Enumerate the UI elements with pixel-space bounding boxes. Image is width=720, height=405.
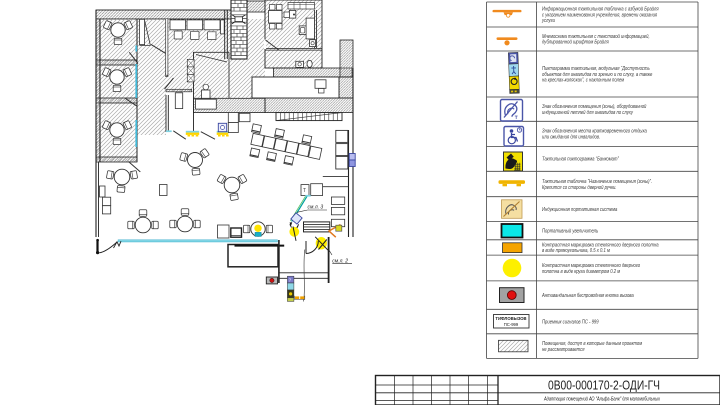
svg-text:ПС-999: ПС-999	[504, 322, 519, 327]
svg-text:Тактильная пиктограмма “Банком: Тактильная пиктограмма “Банкомат”	[542, 156, 619, 161]
svg-text:не рассматривается: не рассматривается	[542, 347, 585, 352]
svg-text:Портативный увеличитель: Портативный увеличитель	[542, 227, 599, 233]
svg-text:Тактильная табличка “Назначени: Тактильная табличка “Назначение помещени…	[542, 179, 652, 184]
svg-text:на креслах-колясках”, с наклон: на креслах-колясках”, с наклонным полем	[542, 77, 625, 82]
svg-text:Антивандальная беспроводная кн: Антивандальная беспроводная кнопка вызов…	[541, 293, 634, 298]
svg-text:или ожидания для инвалидов.: или ожидания для инвалидов.	[542, 134, 600, 139]
svg-text:Контрастная маркировка стеклян: Контрастная маркировка стеклянного дверн…	[542, 242, 659, 247]
svg-text:0В00-000170-2-ОДИ-ГЧ: 0В00-000170-2-ОДИ-ГЧ	[548, 378, 660, 392]
svg-text:полотна в виде круга диаметром: полотна в виде круга диаметром 0.2 м	[542, 268, 621, 273]
svg-text:Контрастная маркировка стеклян: Контрастная маркировка стеклянного дверн…	[542, 263, 640, 268]
svg-text:ТИФЛОВЫЗОВ: ТИФЛОВЫЗОВ	[495, 316, 526, 321]
svg-text:Знак обозначения места кратков: Знак обозначения места кратковременного …	[542, 128, 647, 133]
svg-text:Крепится со стороны дверной ру: Крепится со стороны дверной ручки.	[542, 183, 617, 189]
svg-text:Информационная тактильная табл: Информационная тактильная табличка с азб…	[542, 5, 659, 11]
svg-text:объектов для инвалидов по зрен: объектов для инвалидов по зрению и по сл…	[542, 71, 653, 76]
svg-text:дублированной шрифтом Брайля: дублированной шрифтом Брайля	[542, 38, 609, 44]
svg-text:Пиктограмма тактильная, модуль: Пиктограмма тактильная, модульная “Досту…	[542, 66, 650, 71]
svg-text:в виде прямоугольника, 0.5 х 0: в виде прямоугольника, 0.5 х 0.1 м	[542, 248, 611, 253]
svg-text:Мнемосхема тактильная с тексто: Мнемосхема тактильная с текстовой информ…	[542, 32, 650, 38]
svg-text:T: T	[303, 188, 306, 194]
svg-text:Индукционная портативная систе: Индукционная портативная система	[542, 207, 618, 212]
svg-text:Знак обозначения помещения (зо: Знак обозначения помещения (зоны), обору…	[542, 103, 647, 109]
svg-text:Помещения, доступ в которые да: Помещения, доступ в которые данным проек…	[542, 341, 643, 346]
svg-text:индукционной петлей для инвали: индукционной петлей для инвалидов по слу…	[542, 108, 634, 114]
svg-text:услуги: услуги	[541, 18, 555, 23]
svg-text:Адаптация помещений АО "Альфа-: Адаптация помещений АО "Альфа-Банк" для …	[543, 395, 660, 402]
svg-text:Приемник сигналов ПС - 999: Приемник сигналов ПС - 999	[542, 319, 599, 324]
svg-text:с указанием наименования учреж: с указанием наименования учреждения, вре…	[542, 12, 658, 17]
